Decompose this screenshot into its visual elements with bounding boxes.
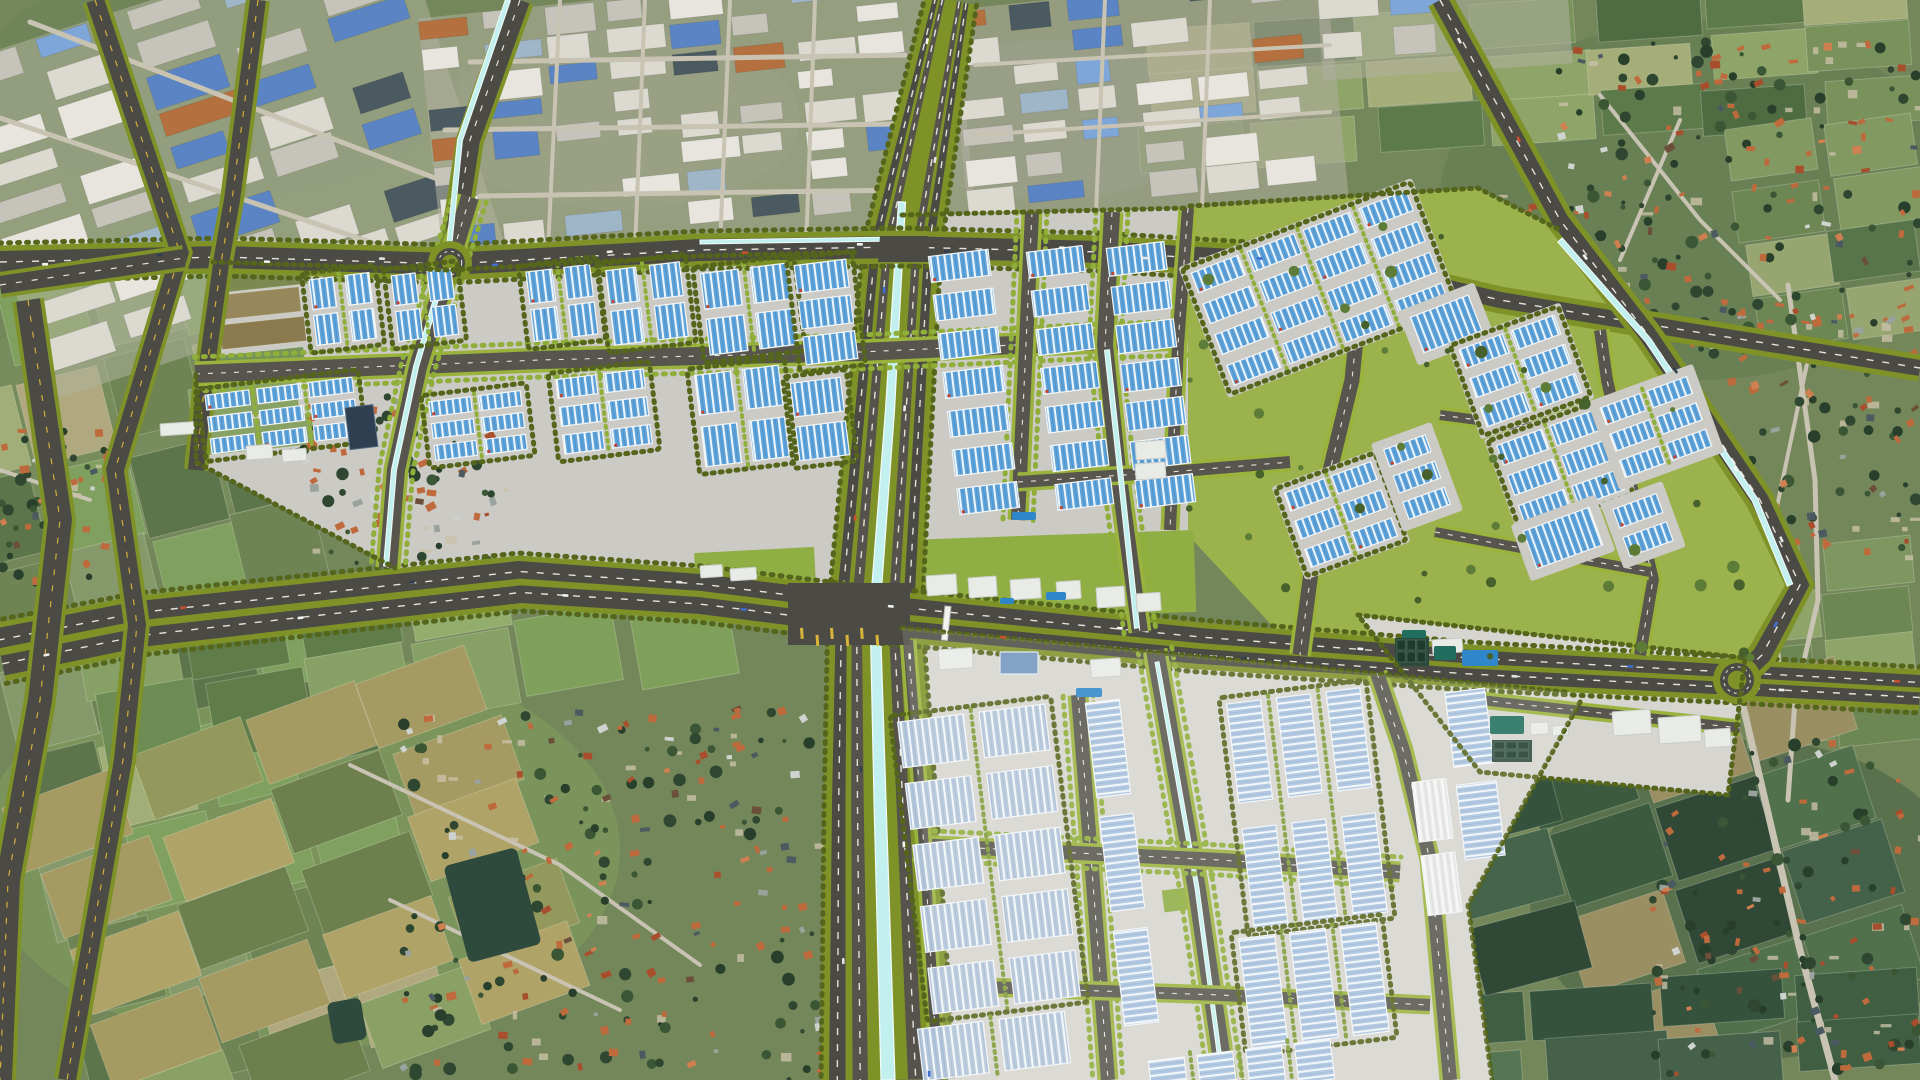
village-tree xyxy=(1819,402,1830,413)
aerial-3d-render xyxy=(0,0,1920,1080)
lawn-tree xyxy=(1298,465,1303,470)
vehicle xyxy=(842,958,845,964)
village-tree xyxy=(771,951,784,964)
village-tree xyxy=(578,753,583,758)
village-tree xyxy=(803,1065,811,1073)
village-yard xyxy=(1806,324,1812,330)
village-tree xyxy=(1801,983,1805,987)
village-yard xyxy=(1801,828,1811,835)
village-yard xyxy=(423,758,429,764)
village-tree xyxy=(1771,853,1784,866)
village-yard xyxy=(313,549,321,554)
village-tree xyxy=(1862,953,1874,965)
village-tree xyxy=(1718,817,1728,827)
lawn-tree xyxy=(1256,470,1265,479)
warehouse-building xyxy=(790,377,844,417)
village-tree xyxy=(345,529,350,534)
loading-door xyxy=(1140,504,1143,507)
village-house xyxy=(1910,918,1919,926)
warehouse-building xyxy=(314,313,341,346)
loading-door xyxy=(614,444,617,447)
village-house xyxy=(475,779,481,784)
village-tree xyxy=(70,455,77,462)
village-tree xyxy=(1671,302,1679,310)
field-patch xyxy=(1823,535,1915,591)
village-tree xyxy=(706,811,711,816)
village-house xyxy=(1604,191,1611,197)
village-tree xyxy=(1835,487,1844,496)
village-tree xyxy=(592,785,602,795)
factory-roof xyxy=(672,50,718,75)
village-tree xyxy=(1848,972,1856,980)
village-house xyxy=(698,777,704,784)
village-tree xyxy=(411,913,417,919)
vehicle xyxy=(908,653,911,659)
village-tree xyxy=(1903,482,1908,487)
phase2-haze xyxy=(902,628,1580,1080)
village-yard xyxy=(539,1054,548,1061)
village-yard xyxy=(1691,198,1703,206)
village-house xyxy=(1912,190,1920,198)
village-tree xyxy=(1620,205,1625,210)
vehicle xyxy=(42,263,48,266)
office-building xyxy=(1612,709,1652,736)
village-house xyxy=(1831,1040,1839,1046)
village-tree xyxy=(406,924,415,933)
factory-roof xyxy=(731,13,768,36)
loading-door xyxy=(962,510,965,513)
village-pond xyxy=(327,997,368,1044)
village-tree xyxy=(1889,86,1894,91)
village-tree xyxy=(1898,544,1905,551)
lawn-tree xyxy=(1475,346,1487,358)
village-yard xyxy=(1764,1037,1774,1045)
village-tree xyxy=(1709,348,1720,359)
village-tree xyxy=(1639,203,1644,208)
village-house xyxy=(1779,972,1789,978)
village-house xyxy=(1584,212,1589,219)
village-house xyxy=(751,806,761,814)
village-tree xyxy=(1651,1010,1656,1015)
village-tree xyxy=(1812,738,1820,746)
loading-door xyxy=(933,278,936,281)
vehicle xyxy=(607,250,613,253)
village-house xyxy=(1764,158,1769,165)
factory-roof xyxy=(1393,24,1436,55)
village-tree xyxy=(752,816,760,824)
village-house xyxy=(1737,889,1743,894)
loading-door xyxy=(611,300,614,303)
village-house xyxy=(631,814,640,823)
village-house xyxy=(405,950,411,957)
factory-roof xyxy=(545,2,597,35)
lawn-tree xyxy=(1397,443,1405,451)
village-yard xyxy=(1829,956,1839,959)
village-tree xyxy=(1700,45,1713,58)
treatment-tank-cell xyxy=(1397,652,1406,662)
lawn-tree xyxy=(1385,266,1397,278)
village-yard xyxy=(1662,982,1668,989)
loading-door xyxy=(314,305,317,308)
village-tree xyxy=(780,938,785,943)
lawn-tree xyxy=(1734,579,1745,590)
village-tree xyxy=(1865,491,1871,497)
field-patch xyxy=(1596,0,1703,42)
warehouse-building xyxy=(603,369,645,393)
loading-door xyxy=(314,415,317,418)
village-tree xyxy=(329,550,334,555)
office-building xyxy=(160,422,195,436)
village-tree xyxy=(1690,286,1702,298)
village-tree xyxy=(1838,426,1848,436)
village-tree xyxy=(664,814,677,827)
village-house xyxy=(1829,740,1836,747)
factory-roof xyxy=(798,68,834,88)
village-house xyxy=(1837,314,1842,319)
village-house xyxy=(671,790,679,798)
village-tree xyxy=(1740,52,1744,56)
village-tree xyxy=(1898,94,1908,104)
village-tree xyxy=(478,992,483,997)
office-building xyxy=(246,444,273,460)
village-tree xyxy=(1729,72,1737,80)
loading-door xyxy=(1031,274,1034,277)
village-tree xyxy=(1693,891,1698,896)
village-yard xyxy=(1829,152,1835,155)
village-house xyxy=(786,856,796,863)
village-tree xyxy=(483,982,492,991)
village-house xyxy=(1780,993,1787,1000)
village-yard xyxy=(1857,43,1867,47)
village-tree xyxy=(1685,921,1696,932)
village-yard xyxy=(507,838,518,842)
office-building xyxy=(1704,728,1731,748)
village-tree xyxy=(667,746,678,757)
village-yard xyxy=(1825,1027,1831,1032)
vehicle xyxy=(1257,257,1263,260)
treatment-tank-cell xyxy=(1417,640,1426,650)
village-yard xyxy=(437,775,446,782)
factory-roof xyxy=(1020,89,1069,114)
village-house xyxy=(310,484,320,493)
village-house xyxy=(1767,320,1774,324)
village-tree xyxy=(495,977,505,987)
village-tree xyxy=(1715,121,1726,132)
village-tree xyxy=(1615,148,1628,161)
village-tree xyxy=(1700,1000,1709,1009)
village-yard xyxy=(96,465,102,469)
village-yard xyxy=(1826,57,1834,64)
village-tree xyxy=(1906,272,1911,277)
village-tree xyxy=(354,561,358,565)
lawn-tree xyxy=(1186,505,1193,512)
village-house xyxy=(1748,790,1757,796)
village-yard xyxy=(1874,1031,1880,1034)
lawn-tree xyxy=(1254,408,1264,418)
loading-door xyxy=(1060,506,1063,509)
village-tree xyxy=(660,1022,671,1033)
village-tree xyxy=(1769,757,1779,767)
village-tree xyxy=(782,739,786,743)
treatment-basin xyxy=(1434,646,1456,660)
vehicle xyxy=(1241,657,1247,660)
village-yard xyxy=(1882,335,1892,342)
village-tree xyxy=(404,991,409,996)
village-yard xyxy=(1809,832,1818,841)
village-tree xyxy=(1774,79,1786,91)
village-tree xyxy=(1651,1050,1660,1059)
village-tree xyxy=(1618,139,1625,146)
village-tree xyxy=(1670,160,1678,168)
vehicle xyxy=(492,263,498,266)
village-house xyxy=(426,489,436,496)
village-tree xyxy=(631,871,637,877)
village-house xyxy=(714,872,721,879)
village-tree xyxy=(408,779,421,792)
village-house xyxy=(83,526,91,532)
village-house xyxy=(1831,320,1837,324)
village-house xyxy=(1704,935,1710,943)
village-house xyxy=(1910,145,1917,149)
warehouse-building xyxy=(742,365,783,409)
village-yard xyxy=(1852,526,1859,532)
village-house xyxy=(593,1012,598,1016)
village-house xyxy=(1743,862,1749,867)
village-tree xyxy=(1860,815,1871,826)
village-house xyxy=(1866,414,1874,422)
village-yard xyxy=(424,527,429,530)
lawn-tree xyxy=(1693,500,1701,508)
vehicle xyxy=(903,405,906,411)
village-house xyxy=(78,477,83,483)
vehicle xyxy=(264,260,270,263)
treatment-tank-cell xyxy=(1417,652,1426,662)
village-house xyxy=(662,1011,667,1017)
village-tree xyxy=(809,931,814,936)
village-yard xyxy=(1618,267,1626,272)
office-building xyxy=(1135,462,1166,480)
village-tree xyxy=(1676,255,1681,260)
lawn-tree xyxy=(1486,577,1496,587)
factory-roof xyxy=(1149,167,1198,197)
lawn-tree xyxy=(1629,544,1641,556)
village-tree xyxy=(85,464,91,470)
village-house xyxy=(1852,146,1862,155)
village-yard xyxy=(1768,956,1779,960)
loading-door xyxy=(208,406,211,409)
lawn-tree xyxy=(1603,581,1614,592)
village-house xyxy=(648,714,657,723)
village-tree xyxy=(86,574,92,580)
village-house xyxy=(1710,61,1720,69)
lawn-tree xyxy=(1199,340,1209,350)
village-tree xyxy=(21,436,28,443)
village-house xyxy=(1574,211,1579,215)
village-tree xyxy=(1843,190,1852,199)
village-yard xyxy=(1559,103,1568,107)
loading-door xyxy=(1045,390,1048,393)
office-building xyxy=(700,564,723,578)
village-tree xyxy=(803,737,814,748)
village-tree xyxy=(1696,135,1701,140)
factory-roof xyxy=(1265,156,1317,186)
village-tree xyxy=(1786,930,1793,937)
warehouse-building xyxy=(798,295,853,329)
village-tree xyxy=(1800,934,1807,941)
vehicle xyxy=(883,287,886,293)
warehouse-building xyxy=(706,315,748,355)
village-yard xyxy=(687,795,696,801)
loading-door xyxy=(1125,388,1128,391)
warehouse-building xyxy=(427,269,454,302)
village-tree xyxy=(568,988,577,997)
village-tree xyxy=(1740,874,1746,880)
village-tree xyxy=(1776,132,1782,138)
lawn-tree xyxy=(1378,222,1387,231)
factory-roof xyxy=(613,88,650,112)
factory-roof xyxy=(960,97,1005,120)
field-patch xyxy=(1600,83,1707,135)
village-tree xyxy=(1868,224,1875,231)
village-tree xyxy=(1845,77,1854,86)
warehouse-building xyxy=(606,267,640,304)
village-yard xyxy=(1891,517,1900,522)
village-tree xyxy=(762,1050,772,1060)
village-tree xyxy=(1666,1070,1673,1077)
village-tree xyxy=(1644,179,1651,186)
village-house xyxy=(1666,125,1671,130)
village-tree xyxy=(1576,109,1582,115)
village-tree xyxy=(621,990,633,1002)
dark-factory-building xyxy=(345,405,378,450)
village-yard xyxy=(1812,192,1817,201)
village-tree xyxy=(427,474,438,485)
phase2-haze-overlay xyxy=(902,628,1580,1080)
village-tree xyxy=(1866,761,1874,769)
village-yard xyxy=(737,954,744,962)
lawn-tree xyxy=(1438,234,1444,240)
lawn-tree xyxy=(1203,274,1214,285)
village-tree xyxy=(744,828,756,840)
lawn-tree xyxy=(1340,303,1350,313)
village-tree xyxy=(1808,430,1821,443)
village-tree xyxy=(1759,428,1767,436)
village-yard xyxy=(731,734,737,739)
village-yard xyxy=(1838,330,1844,338)
village-house xyxy=(1795,166,1804,174)
warehouse-building xyxy=(563,430,605,454)
intersection-plaza xyxy=(788,583,910,645)
village-tree xyxy=(540,975,547,982)
village-tree xyxy=(1644,217,1653,226)
vehicle xyxy=(1357,647,1363,650)
village-house xyxy=(464,977,470,981)
village-tree xyxy=(775,807,783,815)
aerial-masterplan-viewport xyxy=(0,0,1920,1080)
village-yard xyxy=(456,836,463,840)
village-house xyxy=(1752,897,1760,902)
village-tree xyxy=(1892,426,1903,437)
village-tree xyxy=(339,489,346,496)
lawn-tree xyxy=(1487,653,1493,659)
village-tree xyxy=(1820,124,1825,129)
lawn-tree xyxy=(1521,367,1527,373)
treatment-tank-cell xyxy=(1397,640,1406,650)
village-tree xyxy=(417,743,427,753)
village-tree xyxy=(504,1042,513,1051)
warehouse-building xyxy=(700,269,742,309)
village-tree xyxy=(690,723,701,734)
office-building xyxy=(282,448,307,462)
village-tree xyxy=(1587,190,1599,202)
village-house xyxy=(1618,85,1626,91)
village-tree xyxy=(1804,957,1816,969)
warehouse-building xyxy=(309,277,336,310)
village-tree xyxy=(1755,819,1760,824)
village-tree xyxy=(1649,896,1657,904)
village-tree xyxy=(1788,739,1801,752)
village-tree xyxy=(1748,999,1761,1012)
lawn-tree xyxy=(1695,579,1707,591)
warehouse-building xyxy=(568,302,598,337)
village-tree xyxy=(1896,512,1901,517)
intersection-plaza xyxy=(878,236,930,262)
village-house xyxy=(640,827,650,832)
vehicle xyxy=(1627,665,1633,668)
village-tree xyxy=(322,495,334,507)
village-house xyxy=(1695,1028,1701,1033)
warehouse-building xyxy=(611,308,645,345)
village-house xyxy=(1873,923,1882,930)
village-tree xyxy=(410,1064,422,1076)
warehouse-building xyxy=(749,417,790,461)
village-tree xyxy=(1775,242,1784,251)
warehouse-building xyxy=(559,403,601,427)
village-tree xyxy=(1795,397,1805,407)
village-tree xyxy=(1709,1051,1715,1057)
village-tree xyxy=(690,733,701,744)
village-tree xyxy=(1795,882,1802,889)
loading-door xyxy=(701,411,704,414)
village-house xyxy=(1705,953,1711,960)
village-yard xyxy=(1848,90,1857,98)
village-tree xyxy=(647,1059,657,1069)
factory-roof xyxy=(1013,62,1058,85)
village-yard xyxy=(735,829,743,835)
village-tree xyxy=(1691,56,1703,68)
village-house xyxy=(424,715,434,722)
village-house xyxy=(1823,539,1828,546)
village-tree xyxy=(655,1058,664,1067)
village-tree xyxy=(1674,55,1678,59)
village-tree xyxy=(422,1025,434,1037)
village-house xyxy=(1648,227,1653,235)
village-house xyxy=(1852,885,1860,892)
village-tree xyxy=(810,1000,820,1010)
village-tree xyxy=(619,968,631,980)
lawn-tree xyxy=(1636,641,1648,653)
village-house xyxy=(1904,539,1909,544)
lawn-tree xyxy=(1601,478,1608,485)
village-yard xyxy=(626,766,636,771)
village-tree xyxy=(336,468,348,480)
village-tree xyxy=(384,393,391,400)
village-yard xyxy=(502,740,512,743)
factory-roof xyxy=(422,46,460,71)
village-house xyxy=(575,709,584,716)
office-building xyxy=(926,574,957,596)
vehicle xyxy=(860,766,863,772)
